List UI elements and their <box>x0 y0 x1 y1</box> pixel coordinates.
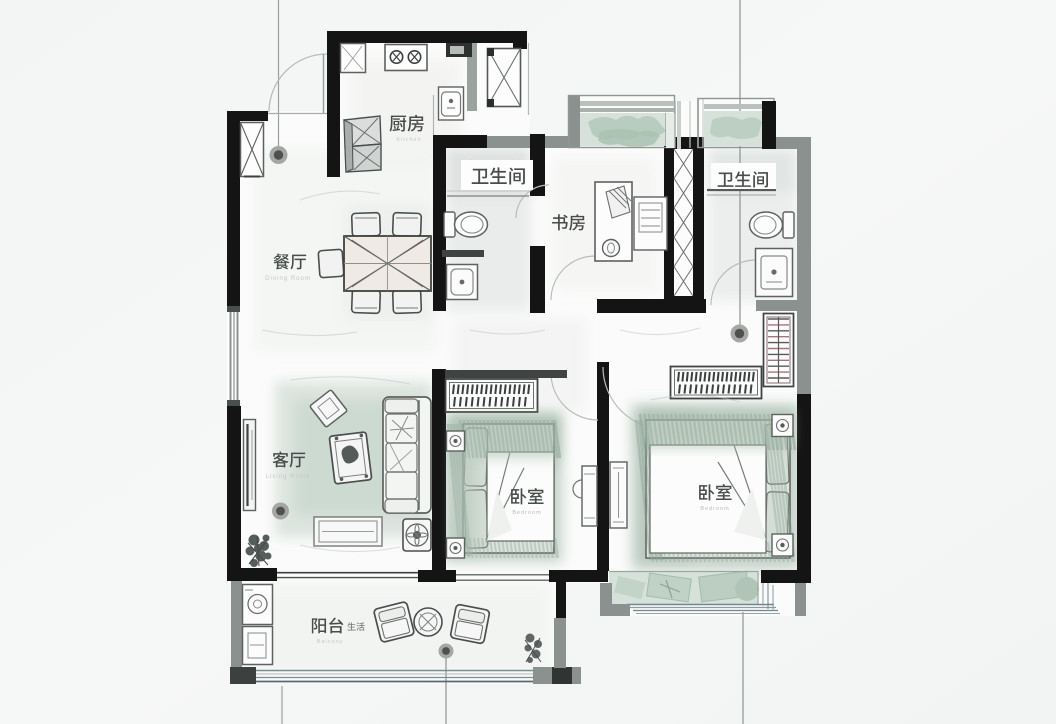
svg-text:Bedroom: Bedroom <box>512 510 541 516</box>
svg-text:Kitchen: Kitchen <box>396 137 421 143</box>
svg-text:Bedroom: Bedroom <box>700 506 729 512</box>
svg-text:Living Room: Living Room <box>266 474 310 480</box>
svg-text:Dining Room: Dining Room <box>265 276 311 282</box>
svg-text:Balcony: Balcony <box>317 639 344 645</box>
